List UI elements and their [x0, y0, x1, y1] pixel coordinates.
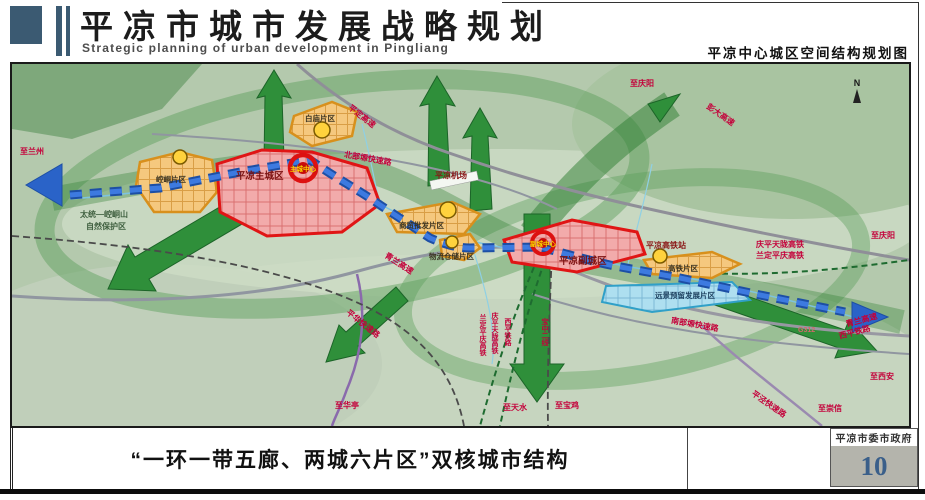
label-district-yuanjing: 远景预留发展片区: [655, 291, 715, 300]
label-g312: G312: [798, 326, 815, 335]
compass-needle-icon: [853, 89, 861, 103]
footer: “一环一带五廊、两城六片区”双核城市结构 平凉市委市政府 10: [10, 428, 911, 489]
label-district-gaotie: 高铁片区: [668, 264, 698, 273]
label-to-baoji: 至宝鸡: [555, 401, 579, 410]
label-qptl-hsr: 庆平天陇高铁: [756, 240, 804, 249]
node-kongtong: [173, 150, 187, 164]
label-qptl-hsr-vertical: 庆平天陇高铁: [490, 312, 498, 354]
node-baimiao: [314, 122, 330, 138]
page-number: 10: [831, 446, 917, 486]
node-wuliu: [446, 236, 458, 248]
page-subtitle: Strategic planning of urban development …: [82, 41, 449, 55]
header-accent-bar-thin: [66, 6, 70, 56]
node-gaotie: [653, 249, 667, 263]
label-district-kongtong: 崆峒片区: [156, 175, 186, 184]
header-accent-bar: [56, 6, 62, 56]
label-nature-reserve-1: 太统—崆峒山: [80, 210, 128, 219]
bottom-bar: [0, 489, 925, 494]
label-district-baimiao: 白庙片区: [305, 114, 335, 123]
label-baozhong-vertical: 宝中二线: [540, 318, 548, 346]
label-city-sub: 平凉副城区: [559, 257, 607, 266]
label-xiping-vertical: 西平铁路: [503, 318, 511, 346]
label-core-main: 主城中心: [290, 165, 316, 174]
label-to-qingyang-east: 至庆阳: [871, 231, 895, 240]
compass-label: N: [854, 78, 861, 88]
agency-block: 平凉市委市政府 10: [830, 428, 918, 487]
node-shangmao: [440, 202, 456, 218]
map-title: 平凉中心城区空间结构规划图: [708, 42, 910, 62]
label-nature-reserve-2: 自然保护区: [86, 222, 126, 231]
header-accent-square: [10, 6, 42, 44]
outer-border-right: [918, 2, 919, 490]
label-to-lanzhou: 至兰州: [20, 147, 44, 156]
label-district-shangmao: 商贸批发片区: [399, 221, 444, 230]
footer-caption: “一环一带五廊、两城六片区”双核城市结构: [131, 444, 570, 474]
label-to-tianshui: 至天水: [503, 403, 527, 412]
agency-name: 平凉市委市政府: [831, 429, 917, 446]
compass-north: N: [848, 78, 866, 103]
label-to-qingyang-north: 至庆阳: [630, 79, 654, 88]
label-to-xian: 至西安: [870, 372, 894, 381]
label-ldpq-hsr-vertical: 兰定平庆高铁: [478, 314, 486, 356]
label-district-wuliu: 物流仓储片区: [429, 252, 474, 261]
label-core-sub: 副城中心: [530, 240, 556, 249]
slide-page: 平凉市城市发展战略规划 Strategic planning of urban …: [0, 0, 925, 500]
planning-map: 至兰州 平定高速 白庙片区 北部塬快速路 平凉机场 平凉主城区 主城中心 崆峒片…: [10, 62, 911, 428]
label-ldpq-hsr: 兰定平庆高铁: [756, 251, 804, 260]
label-to-chongxin: 至崇信: [818, 404, 842, 413]
footer-caption-cell: “一环一带五廊、两城六片区”双核城市结构: [13, 428, 688, 489]
outer-border-top: [502, 2, 919, 3]
label-airport: 平凉机场: [435, 171, 467, 180]
label-hsr-station: 平凉高铁站: [646, 241, 686, 250]
label-city-main: 平凉主城区: [236, 172, 284, 181]
label-to-huating: 至华亭: [335, 401, 359, 410]
